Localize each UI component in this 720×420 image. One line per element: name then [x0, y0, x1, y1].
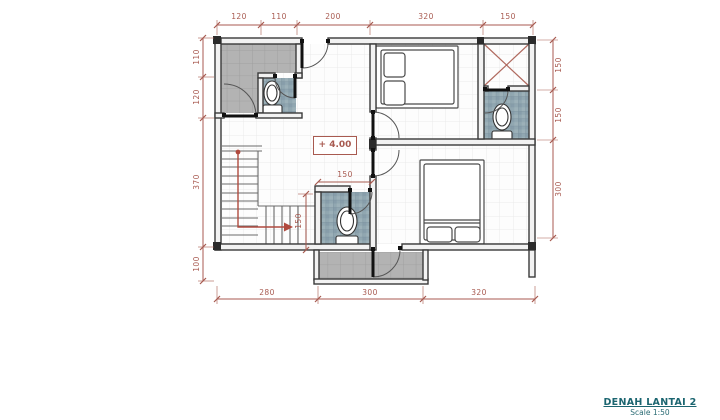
level-marker: + 4.00: [313, 136, 357, 155]
dim-bottom-3: 320: [464, 289, 494, 297]
dim-bottom-2: 300: [355, 289, 385, 297]
pillow: [455, 227, 480, 242]
floor-plan-canvas: 120 110 200 320 150 110 120 370 100 150 …: [0, 0, 720, 420]
dim-left-2: 120: [193, 82, 201, 112]
dim-top-5: 150: [493, 13, 523, 21]
terrace-tiles: [221, 73, 258, 113]
terrace-tiles: [221, 44, 296, 73]
dim-left-1: 110: [193, 42, 201, 72]
dim-top-2: 110: [264, 13, 294, 21]
dim-top-4: 320: [411, 13, 441, 21]
plan-scale: Scale 1:50: [590, 408, 710, 417]
balcony-tiles: [319, 252, 423, 279]
dim-top-3: 200: [318, 13, 348, 21]
dim-left-3: 370: [193, 167, 201, 197]
dim-left-4: 100: [193, 249, 201, 279]
pillow: [384, 53, 405, 77]
bed-top-bedroom: [376, 46, 458, 108]
dim-top: [214, 20, 536, 35]
dim-interior-bath-label: 150: [330, 171, 360, 179]
pillow: [384, 81, 405, 105]
dim-top-1: 120: [224, 13, 254, 21]
pillow: [427, 227, 452, 242]
dim-right-2: 150: [555, 100, 563, 130]
dim-interior-stair-label: 150: [295, 206, 303, 236]
dim-bottom-1: 280: [252, 289, 282, 297]
title-block: DENAH LANTAI 2 Scale 1:50: [590, 397, 710, 417]
bed-bottom-bedroom: [420, 160, 484, 244]
floor-plan-drawing: [0, 0, 720, 420]
toilet-bathroom2: [492, 104, 512, 140]
toilet-bathroom3: [336, 207, 358, 245]
dim-right-3: 300: [555, 174, 563, 204]
plan-title: DENAH LANTAI 2: [590, 397, 710, 408]
dim-right-1: 150: [555, 50, 563, 80]
dim-left: [198, 35, 214, 284]
